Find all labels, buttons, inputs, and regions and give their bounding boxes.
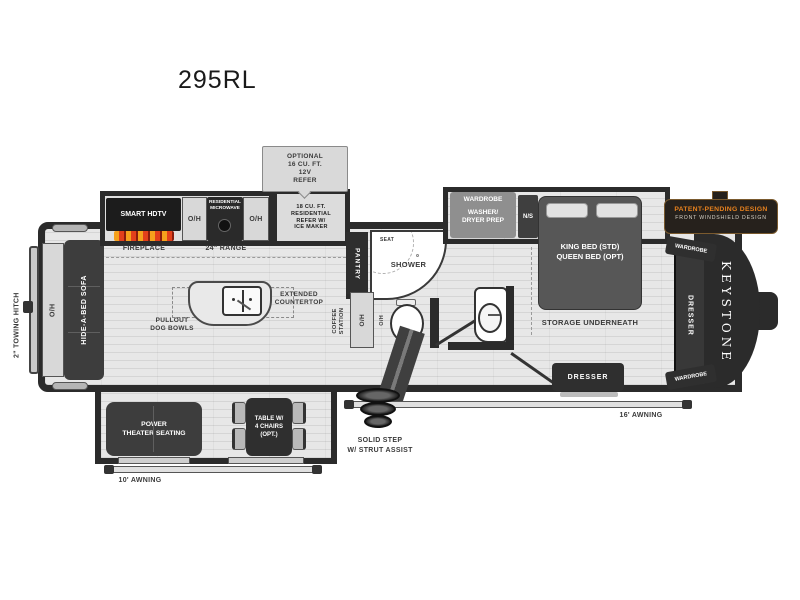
smart-hdtv-label: SMART HDTV: [121, 211, 167, 218]
awning-end-cap: [344, 400, 354, 409]
wardrobe-bottom-label: WARDROBE: [674, 371, 707, 383]
wardrobe-label: WARDROBE: [450, 196, 516, 204]
island-sink: [222, 286, 262, 316]
entry-steps: [360, 402, 396, 416]
awning-16: [344, 401, 692, 408]
fireplace-label: FIREPLACE: [112, 245, 176, 252]
dining-chair: [292, 402, 306, 424]
pillow: [546, 203, 588, 218]
vanity-faucet: [488, 314, 500, 316]
corner-trim: [52, 382, 88, 390]
towing-hitch-label: 2" TOWING HITCH: [10, 268, 24, 382]
step-label: SOLID STEP W/ STRUT ASSIST: [330, 436, 430, 456]
pantry-label: PANTRY: [354, 248, 361, 280]
bed-label: KING BED (STD) QUEEN BED (OPT): [538, 242, 642, 262]
entry-steps: [356, 388, 400, 403]
dining-chair: [232, 402, 246, 424]
dresser-strip: DRESSER: [674, 246, 704, 384]
window: [118, 457, 190, 464]
page-title: 295RL: [178, 66, 257, 95]
nightstand: N/S: [518, 195, 538, 238]
faucet-dot: [249, 298, 252, 301]
dresser-box: DRESSER: [552, 363, 624, 391]
coffee-station-label: COFFEE STATION: [332, 291, 346, 351]
range-burner: [218, 219, 231, 232]
dresser-rail: [560, 392, 618, 397]
awning-end-cap: [104, 465, 114, 474]
awning-10: [104, 466, 322, 473]
dresser-box-label: DRESSER: [568, 374, 609, 381]
sink-divider: [242, 290, 244, 312]
dog-bowls-label: PULLOUT DOG BOWLS: [140, 317, 204, 334]
awning-10-label: 10' AWNING: [100, 477, 180, 484]
bath-wall: [448, 342, 514, 350]
coffee-overhead: O/H: [350, 292, 374, 348]
shower-label: SHOWER: [372, 260, 445, 269]
floorplan: 295RL 2" TOWING HITCH O/H HIDE-A-BED SOF…: [0, 0, 800, 600]
wardrobe-top-label: WARDROBE: [674, 243, 707, 255]
storage-label: STORAGE UNDERNEATH: [528, 318, 652, 327]
vanity-sink: [478, 303, 502, 333]
optional-refer-label: OPTIONAL 16 CU. FT. 12V REFER: [262, 146, 348, 192]
toilet-overhead-label: O/H: [376, 303, 388, 337]
awning-end-cap: [312, 465, 322, 474]
washer-dryer-label: WASHER/ DRYER PREP: [450, 209, 516, 225]
overhead-cabinet: O/H: [182, 197, 207, 241]
hitch-knob: [23, 301, 33, 313]
pantry-cabinet: PANTRY: [346, 232, 368, 296]
shower-seat-label: SEAT: [380, 237, 394, 243]
badge-line2: FRONT WINDSHIELD DESIGN: [665, 215, 777, 221]
bath-wall: [430, 298, 439, 348]
hide-a-bed-sofa: HIDE-A-BED SOFA: [64, 240, 104, 380]
dining-table: TABLE W/ 4 CHAIRS (OPT.): [246, 398, 292, 456]
coffee-overhead-label: O/H: [359, 314, 366, 326]
smart-hdtv: SMART HDTV: [106, 198, 181, 231]
entry-steps: [364, 415, 392, 428]
wardrobe-washer-dryer: WARDROBE WASHER/ DRYER PREP: [450, 192, 516, 238]
keystone-logo: KEYSTONE: [714, 256, 738, 368]
awning-end-cap: [682, 400, 692, 409]
fireplace-flames: [114, 231, 174, 241]
dining-chair: [232, 428, 246, 450]
dresser-strip-label: DRESSER: [687, 295, 694, 336]
microwave-label: RESIDENTIAL MICROWAVE: [207, 197, 243, 212]
toilet-overhead-text: O/H: [379, 315, 385, 326]
pillow: [596, 203, 638, 218]
sofa-label: HIDE-A-BED SOFA: [81, 275, 88, 345]
bath-wall: [506, 286, 514, 348]
rear-overhead: O/H: [42, 243, 64, 377]
nightstand-label: N/S: [523, 214, 533, 220]
window: [228, 457, 304, 464]
overhead-cabinet: O/H: [243, 197, 269, 241]
theater-seating: POWER THEATER SEATING: [106, 402, 202, 456]
dining-chair: [292, 428, 306, 450]
faucet-handle: [237, 300, 251, 311]
slide-dashed-line: [106, 257, 346, 258]
patent-badge: PATENT-PENDING DESIGN FRONT WINDSHIELD D…: [664, 199, 778, 234]
refrigerator: 18 CU. FT. RESIDENTIAL REFER W/ ICE MAKE…: [272, 189, 350, 246]
corner-trim: [52, 224, 88, 232]
badge-line1: PATENT-PENDING DESIGN: [665, 206, 777, 213]
awning-16-label: 16' AWNING: [606, 412, 676, 419]
shower-drain: [416, 254, 419, 257]
extended-countertop-label: EXTENDED COUNTERTOP: [268, 291, 330, 308]
seat-divider: [153, 406, 154, 452]
microwave-range: RESIDENTIAL MICROWAVE: [207, 197, 243, 241]
range-label: 24" RANGE: [198, 245, 254, 252]
keystone-logo-text: KEYSTONE: [719, 261, 733, 364]
faucet-dot: [232, 298, 235, 301]
